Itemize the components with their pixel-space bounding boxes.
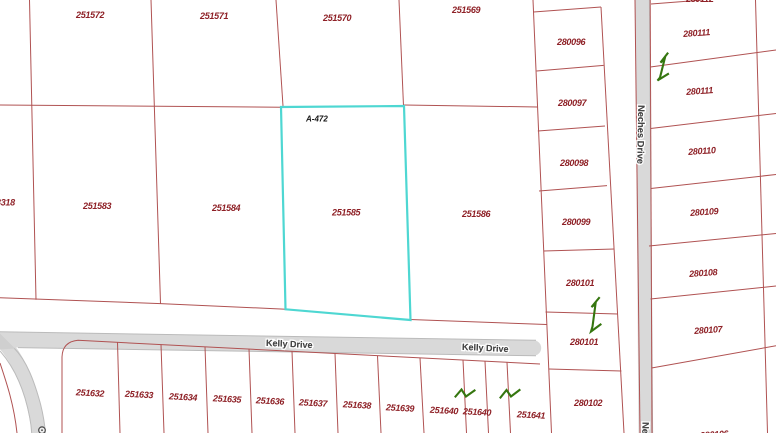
- svg-text:3318: 3318: [0, 198, 15, 208]
- svg-text:251641: 251641: [516, 409, 546, 421]
- svg-text:A-472: A-472: [305, 115, 328, 124]
- svg-text:280107: 280107: [693, 324, 724, 336]
- svg-text:251640: 251640: [462, 406, 492, 418]
- svg-text:251569: 251569: [451, 5, 481, 15]
- svg-text:251639: 251639: [385, 402, 415, 414]
- svg-text:251636: 251636: [255, 395, 286, 407]
- svg-text:251634: 251634: [168, 391, 198, 403]
- svg-text:280110: 280110: [687, 145, 716, 157]
- svg-text:Neches Drive: Neches Drive: [639, 422, 650, 433]
- svg-text:251640: 251640: [429, 405, 459, 417]
- svg-text:280099: 280099: [561, 217, 591, 227]
- svg-text:251570: 251570: [322, 13, 352, 23]
- svg-text:280096: 280096: [556, 37, 587, 47]
- svg-text:251586: 251586: [461, 209, 492, 219]
- svg-text:280097: 280097: [557, 98, 588, 108]
- svg-text:Neches Drive: Neches Drive: [635, 105, 646, 164]
- svg-text:251584: 251584: [211, 203, 241, 213]
- svg-text:280111: 280111: [685, 85, 714, 97]
- svg-text:251632: 251632: [75, 387, 105, 399]
- svg-text:251638: 251638: [342, 399, 372, 411]
- svg-text:280109: 280109: [689, 206, 719, 218]
- svg-text:251637: 251637: [298, 397, 329, 409]
- svg-text:280111: 280111: [682, 27, 711, 39]
- svg-text:280102: 280102: [573, 398, 603, 408]
- svg-text:251571: 251571: [199, 11, 229, 21]
- svg-text:280101: 280101: [569, 337, 599, 347]
- svg-text:251633: 251633: [124, 389, 154, 401]
- svg-text:251585: 251585: [331, 208, 362, 218]
- svg-text:280112: 280112: [685, 0, 714, 4]
- svg-text:251635: 251635: [212, 393, 243, 405]
- svg-text:251583: 251583: [82, 201, 112, 211]
- svg-text:280108: 280108: [688, 267, 718, 279]
- svg-text:251572: 251572: [75, 10, 105, 20]
- svg-text:280098: 280098: [559, 158, 589, 168]
- svg-text:280101: 280101: [565, 278, 595, 288]
